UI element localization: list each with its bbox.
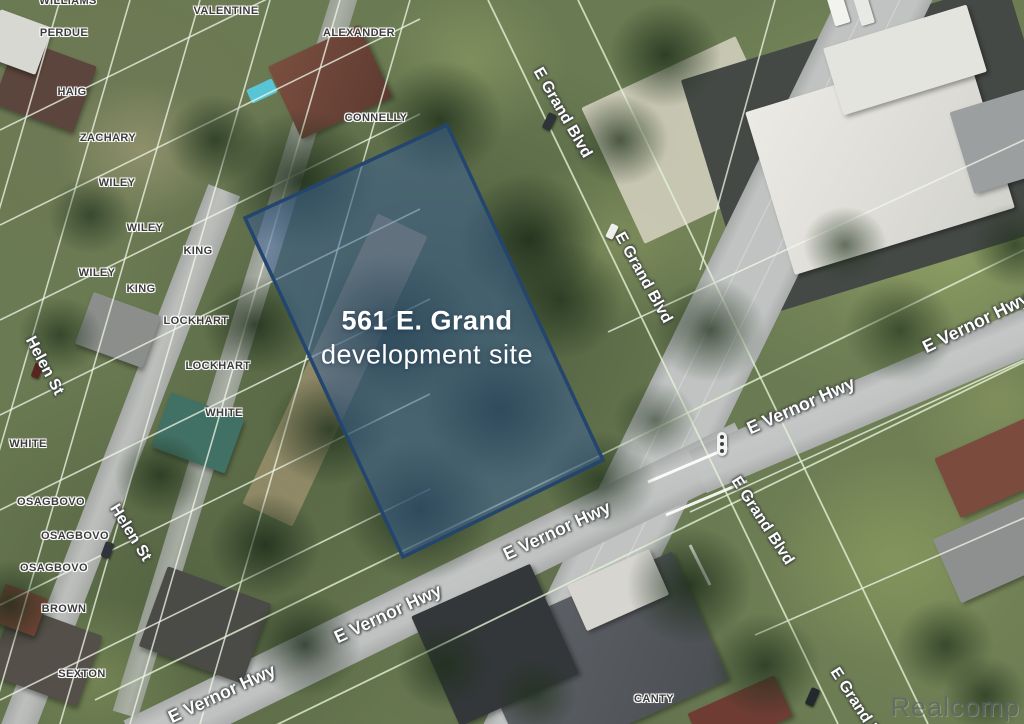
parcel-label-alexander: ALEXANDER (323, 27, 395, 39)
street-label-e-grand-blvd-2: E Grand Blvd (611, 229, 676, 326)
parcel-label-wiley-1: WILEY (99, 177, 136, 189)
parcel-label-osagbovo-1: OSAGBOVO (17, 496, 85, 508)
building-se-gray (933, 497, 1024, 604)
parcel-label-perdue: PERDUE (40, 27, 88, 39)
parcel-label-canty: CANTY (634, 693, 674, 705)
parcel-label-valentine: VALENTINE (193, 5, 258, 17)
street-label-helen-st-2: Helen St (105, 501, 154, 565)
traffic-signal-icon (717, 432, 727, 456)
street-label-e-grand-blvd-4: E Grand Blvd (826, 665, 896, 724)
car-dark-grand-south (805, 687, 821, 707)
parcel-label-zachary: ZACHARY (80, 132, 136, 144)
parcel-label-wiley-3: WILEY (79, 267, 116, 279)
building-se-red (934, 412, 1024, 518)
parcel-label-white-2: WHITE (9, 438, 46, 450)
street-label-e-grand-blvd-3: E Grand Blvd (727, 474, 797, 569)
watermark-realcomp: Realcomp (890, 692, 1020, 723)
parcel-label-king-1: KING (183, 245, 212, 257)
parcel-label-sexton: SEXTON (58, 668, 105, 680)
parcel-label-osagbovo-2: OSAGBOVO (41, 530, 109, 542)
swimming-pool (246, 78, 278, 103)
parcel-label-lockhart-1: LOCKHART (164, 315, 229, 327)
parcel-label-williams: WILLIAMS (39, 0, 97, 7)
parcel-label-connelly: CONNELLY (345, 112, 408, 124)
parcel-label-white-1: WHITE (205, 407, 242, 419)
site-callout-subtitle: development site (321, 340, 533, 371)
parcel-label-king-2: KING (126, 283, 155, 295)
parcel-label-lockhart-2: LOCKHART (186, 360, 251, 372)
parcel-label-haig: HAIG (57, 86, 86, 98)
parcel-label-brown: BROWN (42, 603, 87, 615)
site-callout-title: 561 E. Grand (321, 306, 533, 337)
aerial-map: WILLIAMS VALENTINE ALEXANDER CONNELLY PE… (0, 0, 1024, 724)
street-label-helen-st-1: Helen St (21, 334, 67, 399)
parcel-label-wiley-2: WILEY (127, 222, 164, 234)
parcel-label-osagbovo-3: OSAGBOVO (20, 562, 88, 574)
site-callout: 561 E. Grand development site (321, 306, 533, 371)
